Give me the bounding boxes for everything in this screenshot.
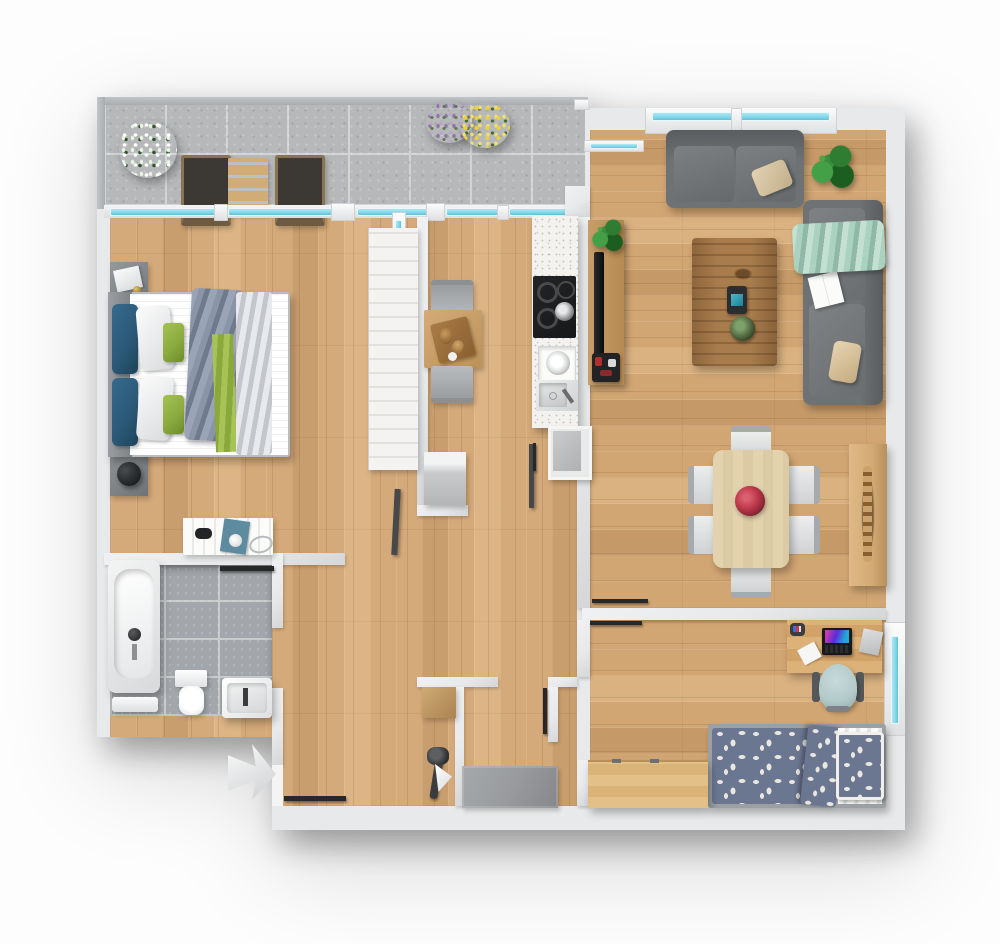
entrance-door-opening — [272, 765, 283, 806]
cooktop — [533, 276, 576, 338]
green-throw — [212, 334, 237, 453]
building-shadow — [0, 0, 1000, 944]
bathtub-basin — [114, 569, 154, 679]
dish-rack — [538, 346, 576, 381]
green-pillow-2 — [163, 395, 184, 434]
single-bed — [708, 724, 886, 808]
clutch — [195, 528, 212, 539]
cup-white — [448, 352, 457, 361]
wall-rail-office — [590, 621, 642, 625]
console-accent-2 — [608, 359, 616, 367]
bathtub — [108, 560, 160, 693]
coat-nook-cabinet — [422, 687, 456, 718]
window-glass-4 — [446, 208, 499, 216]
cabinet-interior — [553, 431, 581, 471]
dining-chair-right-2 — [786, 516, 820, 554]
railing-end-cap — [574, 99, 590, 110]
shoe-rail — [284, 796, 346, 801]
dining-chair-bottom — [731, 564, 771, 598]
window-frame-post-2 — [331, 203, 355, 221]
window-glass-1 — [110, 208, 216, 216]
burner-2 — [557, 281, 575, 299]
plant-small — [590, 219, 624, 253]
plant-bowl — [730, 316, 755, 341]
basin-faucet — [243, 688, 248, 706]
mint-blanket — [792, 220, 886, 275]
console-accent-1 — [595, 357, 602, 366]
green-pillow-1 — [163, 323, 184, 362]
light-sheet — [236, 292, 272, 455]
wall-rail-hall — [543, 688, 547, 734]
toilet-bowl — [179, 686, 204, 715]
wall-entry-vert — [548, 687, 558, 742]
wall-nook-top — [417, 677, 498, 687]
towel-rail — [220, 566, 274, 571]
wall-bath-right-lower — [272, 688, 283, 765]
flower-vase — [735, 486, 765, 516]
flower-pot-white — [119, 120, 177, 178]
wall-rail-living — [592, 599, 648, 603]
base-cabinet — [548, 426, 592, 480]
wall-entry-top — [548, 677, 577, 687]
console-accent-3 — [600, 370, 612, 376]
table-lamp — [117, 462, 141, 486]
bench-hinge-2 — [650, 759, 659, 763]
window-glass-5 — [509, 208, 567, 216]
apartment-building — [0, 0, 1000, 944]
chair-base — [826, 706, 850, 712]
remote — [727, 286, 747, 314]
wardrobe — [368, 228, 418, 470]
laptop-screen — [825, 630, 849, 643]
bench-hinge-1 — [612, 759, 621, 763]
kitchen-chair-bottom — [431, 366, 473, 403]
wall-office-left-upper — [577, 620, 590, 677]
window-frame-post-1 — [214, 204, 228, 221]
sofa-top — [666, 130, 804, 208]
window-office-glass — [891, 636, 899, 724]
game-console — [592, 353, 620, 382]
tall-cabinet — [424, 452, 466, 505]
kitchen-sink — [536, 380, 578, 411]
washbasin — [222, 678, 272, 718]
cabinet-handle — [533, 443, 536, 471]
bowl-white — [229, 534, 242, 547]
patterned-pillow — [836, 732, 884, 800]
window-frame-post-4 — [497, 205, 509, 220]
chair-armrest-right — [856, 672, 864, 702]
window-glass-2 — [228, 208, 333, 216]
wall-living-office — [582, 608, 886, 620]
tub-drain — [132, 644, 137, 660]
floor-plan-canvas — [0, 0, 1000, 944]
plates — [546, 351, 570, 375]
chair-seat — [819, 664, 857, 710]
pan-on-burner — [555, 302, 574, 321]
flower-pot-yellow — [460, 103, 510, 148]
bread — [440, 328, 452, 344]
window-frame-post-3 — [426, 203, 445, 221]
burner-1 — [537, 282, 558, 303]
sofa-cushion-left — [674, 146, 734, 202]
navy-pillow-2 — [112, 378, 138, 446]
coat-items — [427, 747, 449, 765]
doormat — [462, 766, 558, 808]
wall-stub-bedroom — [417, 505, 468, 516]
plant-large — [808, 145, 856, 190]
wall-bath-right-upper — [272, 553, 283, 628]
pens — [793, 626, 801, 632]
tv — [594, 252, 604, 356]
sideboard-carving — [863, 466, 872, 562]
laptop-keyboard — [825, 645, 849, 653]
wooden-bench — [588, 760, 708, 808]
sink-drain — [549, 392, 557, 400]
balcony-railing-left — [97, 97, 105, 209]
bath-shelf — [112, 697, 158, 712]
remote-screen — [731, 294, 743, 306]
sideboard — [849, 444, 887, 586]
tub-faucet — [128, 628, 141, 641]
balcony-railing-top — [97, 97, 588, 105]
radiator-living-glass — [590, 143, 638, 149]
pen-cup — [790, 623, 805, 636]
navy-pillow-1 — [112, 304, 138, 374]
office-chair — [812, 664, 864, 714]
dining-chair-right-1 — [786, 466, 820, 504]
toilet — [175, 670, 207, 687]
laptop — [822, 628, 852, 655]
wall-kitchen-corner — [565, 186, 590, 217]
double-bed — [108, 292, 290, 457]
window-living-post — [731, 108, 742, 132]
